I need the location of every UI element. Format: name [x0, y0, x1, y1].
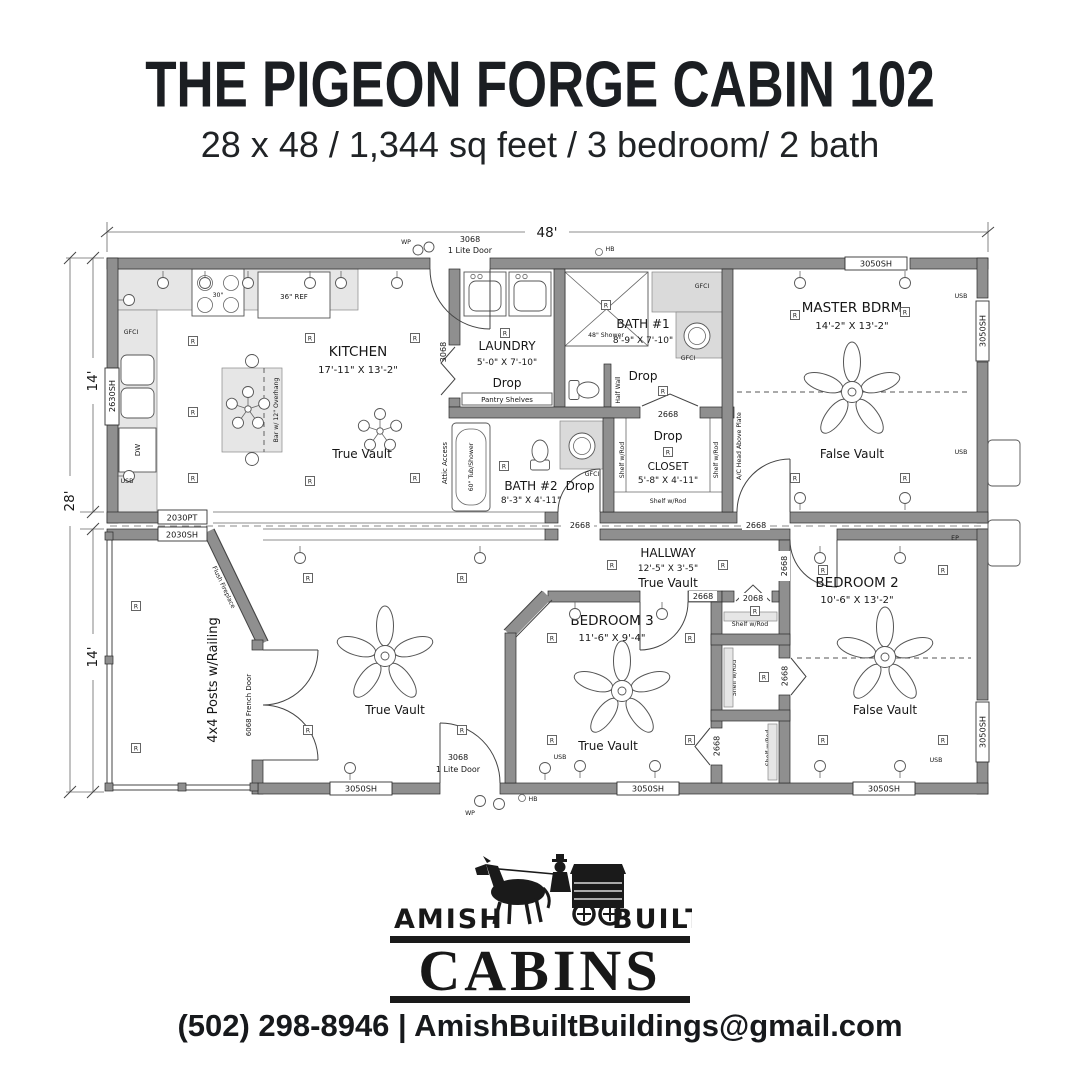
ac-unit-upper	[988, 440, 1020, 486]
usb-bedroom2-label: USB	[930, 757, 943, 764]
bath2-name: BATH #2	[504, 479, 557, 493]
door-front-type-label: 1 Lite Door	[448, 246, 493, 255]
ac-unit-lower	[988, 520, 1020, 566]
bath2-size: 8'-3" X 4'-11"	[501, 496, 561, 506]
usb-bedroom3-label: USB	[554, 754, 567, 761]
window-2030pt-label: 2030PT	[167, 513, 199, 523]
door-bath2-label: 2668	[570, 521, 590, 530]
kitchen-name: KITCHEN	[329, 344, 388, 360]
closet-ceiling: Drop	[654, 429, 683, 443]
door-bedroom2-label: 2668	[780, 556, 789, 576]
bath2-toilet-icon	[531, 440, 550, 470]
window-bedroom3-bottom-label: 3050SH	[632, 784, 664, 794]
usb-master-top-label: USB	[955, 293, 968, 300]
bedroom3-ceiling: True Vault	[577, 739, 638, 753]
hallway-name: HALLWAY	[640, 546, 696, 560]
ep-label: EP	[951, 535, 959, 542]
usb-kitchen-label: USB	[121, 478, 134, 485]
door-closet2068-label: 2068	[743, 594, 763, 603]
island-label: Bar w/ 12" Overhang	[273, 378, 280, 443]
master-size: 14'-2" X 13'-2"	[815, 321, 888, 332]
kitchen-fan-icon	[357, 409, 403, 453]
dim-module-depth-lower: 14'	[85, 647, 101, 668]
horse-and-wagon-icon	[475, 854, 626, 924]
window-kitchen-left-label: 2630SH	[107, 380, 117, 412]
laundry-name: LAUNDRY	[478, 339, 536, 353]
closet-name: CLOSET	[648, 461, 689, 473]
fridge-label: 36" REF	[280, 293, 308, 301]
gfci-kitchen-label: GFCI	[124, 329, 139, 336]
porch-label: 4x4 Posts w/Railing	[206, 617, 221, 743]
wp-top-label: WP	[401, 239, 411, 246]
dryer-icon	[509, 272, 551, 316]
amish-built-cabins-logo: AMISH BUILT	[388, 852, 692, 1004]
ac-head-label: A/C Head Above Plate	[736, 412, 743, 480]
page: THE PIGEON FORGE CABIN 102 28 x 48 / 1,3…	[0, 0, 1080, 1080]
window-master-top-label: 3050SH	[860, 259, 892, 269]
dim-overall-width: 48'	[537, 225, 558, 241]
closet-size: 5'-8" X 4'-11"	[638, 476, 698, 486]
window-bedroom2-bottom-label: 3050SH	[868, 784, 900, 794]
door-closet-bed3-label: 2668	[713, 736, 722, 756]
bedroom2-name: BEDROOM 2	[815, 575, 898, 591]
kitchen-fixtures: 30" 36" REF DW Bar w/ 12" Overhang	[118, 269, 403, 512]
range-label: 30"	[213, 292, 224, 299]
kitchen-size: 17'-11" X 13'-2"	[318, 365, 398, 376]
bedroom2-fan-icon	[835, 607, 935, 702]
bath1-toilet-icon	[569, 381, 599, 400]
door-front-size-label: 3068	[460, 235, 480, 244]
brand-left: AMISH	[394, 904, 504, 935]
gfci-bath2-label: GFCI	[585, 471, 600, 478]
door-bedroom3-label: 2668	[693, 592, 713, 601]
usb-master-bottom-label: USB	[955, 449, 968, 456]
gfci-bath1b-label: GFCI	[681, 355, 696, 362]
master-name: MASTER BDRM	[802, 300, 903, 316]
hallway-ceiling: True Vault	[637, 576, 698, 590]
bedroom3-fan-icon	[572, 641, 672, 736]
logo-rule-bottom	[390, 996, 690, 1003]
hb-top-label: HB	[606, 246, 615, 253]
closet-shelf-right-label: Shelf w/Rod	[713, 442, 720, 478]
door-rear-type-label: 1 Lite Door	[436, 765, 481, 774]
pantry-label: Pantry Shelves	[481, 396, 533, 404]
door-rear-size-label: 3068	[448, 753, 468, 762]
half-wall	[604, 364, 611, 407]
tub-label: 60" Tub/Shower	[468, 442, 475, 491]
attic-access-label: Attic Access	[441, 442, 449, 484]
hallway-size: 12'-5" X 3'-5"	[638, 564, 698, 574]
dishwasher-label: DW	[134, 444, 142, 456]
window-master-right-label: 3050SH	[978, 315, 988, 347]
washer-icon	[464, 272, 506, 316]
dim-overall-depth: 28'	[62, 491, 78, 512]
kitchen-ceiling: True Vault	[331, 447, 392, 461]
bath1-ceiling: Drop	[629, 369, 658, 383]
bath1-size: 8'-9" X 7'-10"	[613, 336, 673, 346]
dim-module-depth-upper: 14'	[85, 371, 101, 392]
master-ceiling: False Vault	[820, 447, 885, 461]
gfci-bath1a-label: GFCI	[695, 283, 710, 290]
laundry-size: 5'-0" X 7'-10"	[477, 358, 537, 368]
master-fan-icon	[802, 342, 902, 437]
living-ceiling: True Vault	[364, 703, 425, 717]
window-bedroom2-right-label: 3050SH	[978, 716, 988, 748]
closet-shelf-label: Shelf w/Rod	[650, 498, 686, 505]
closet-shelf-left-label: Shelf w/Rod	[619, 442, 626, 478]
door-master-label: 2668	[746, 521, 766, 530]
door-closet-bed2-label: 2668	[781, 666, 790, 686]
bedroom2-size: 10'-6" X 13'-2"	[820, 595, 893, 606]
brand-right: BUILT	[612, 904, 692, 935]
wp-bottom-label: WP	[465, 810, 475, 817]
contact-line: (502) 298-8946 | AmishBuiltBuildings@gma…	[0, 1008, 1080, 1044]
doors: 3068 1 Lite Door 3068 2668 2668 2668 266…	[245, 235, 837, 783]
bedroom3-name: BEDROOM 3	[570, 613, 653, 629]
brand-main: CABINS	[418, 938, 661, 1003]
half-wall-label: Half Wall	[615, 376, 622, 404]
french-door-label: 6068 French Door	[245, 674, 253, 736]
closet-top-shelf-label: Shelf w/Rod	[732, 621, 768, 628]
bedroom2-ceiling: False Vault	[853, 703, 918, 717]
laundry-ceiling: Drop	[493, 376, 522, 390]
living-fan-icon	[335, 606, 435, 701]
door-closet-bifold-label: 2668	[658, 410, 678, 419]
hb-bottom-label: HB	[529, 796, 538, 803]
door-laundry-label: 3068	[439, 342, 448, 362]
window-2030sh-label: 2030SH	[166, 530, 198, 540]
bedroom3-size: 11'-6" X 9'-4"	[579, 633, 646, 644]
bath1-name: BATH #1	[616, 317, 669, 331]
window-living-bottom-label: 3050SH	[345, 784, 377, 794]
bath2-ceiling: Drop	[566, 479, 595, 493]
